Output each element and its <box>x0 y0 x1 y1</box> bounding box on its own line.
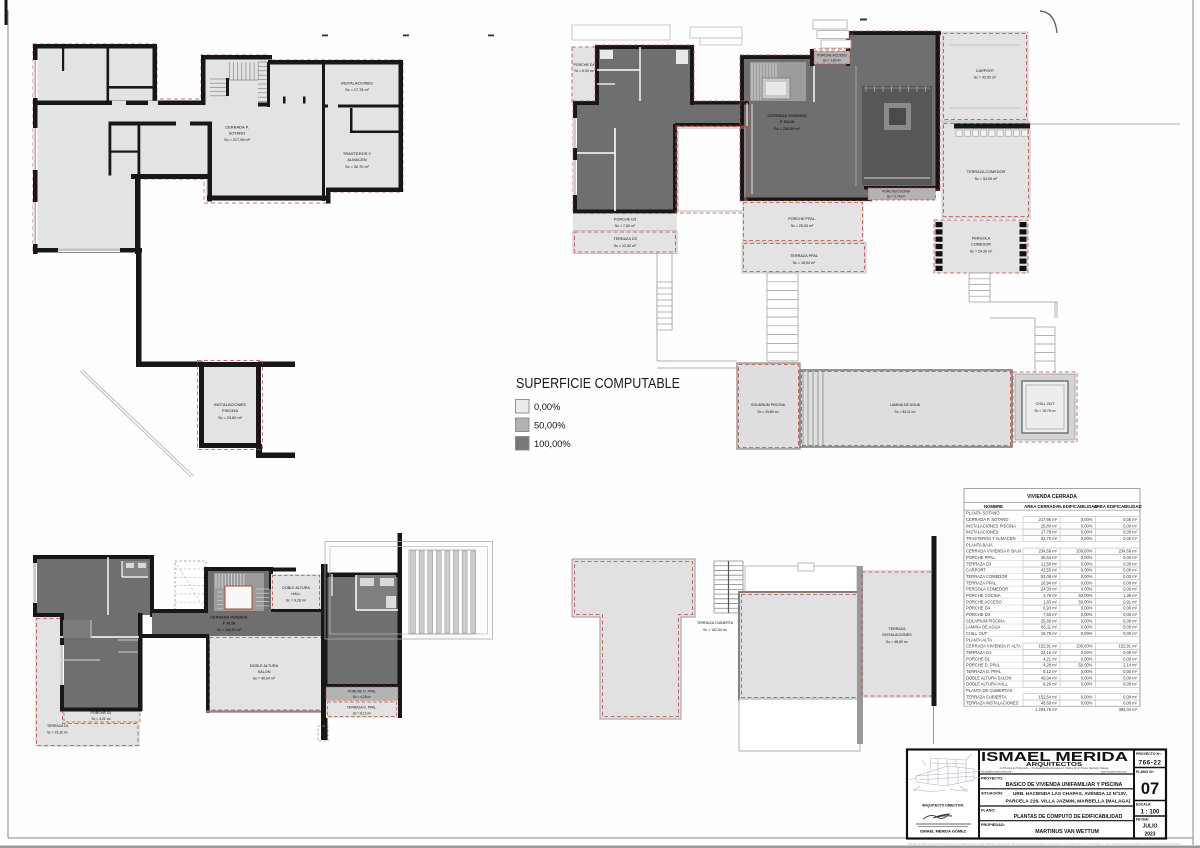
svg-text:Sc = 234,69 m²: Sc = 234,69 m² <box>774 127 801 131</box>
svg-text:0,00%: 0,00% <box>534 402 560 412</box>
svg-text:0,00%: 0,00% <box>1081 580 1093 585</box>
svg-text:152,91 m²: 152,91 m² <box>1039 644 1058 649</box>
svg-text:0,00%: 0,00% <box>1081 682 1093 687</box>
svg-text:Sc = 48,69 m²: Sc = 48,69 m² <box>886 640 909 644</box>
svg-text:Sc = 24,30 m²: Sc = 24,30 m² <box>970 250 993 254</box>
svg-text:P. ALTA: P. ALTA <box>223 622 236 626</box>
svg-text:2,14 m²: 2,14 m² <box>1123 663 1138 668</box>
svg-text:Av.Príncipe de Hohenlohe – Urb: Av.Príncipe de Hohenlohe – Urb.Marbella … <box>1000 766 1109 770</box>
svg-text:INSTALACIONES: INSTALACIONES <box>882 633 912 637</box>
svg-text:PLANTAS DE COMPUTO DE EDIFICAB: PLANTAS DE COMPUTO DE EDIFICABILIDAD <box>1014 814 1123 820</box>
svg-text:PORCHE D1: PORCHE D1 <box>966 656 991 661</box>
svg-text:0,00 m²: 0,00 m² <box>1123 587 1138 592</box>
svg-text:PORCHE D4: PORCHE D4 <box>966 606 991 611</box>
svg-text:TERRAZA D1: TERRAZA D1 <box>966 650 992 655</box>
svg-text:4,28 m²: 4,28 m² <box>1043 663 1058 668</box>
svg-text:50,00%: 50,00% <box>1079 593 1093 598</box>
svg-text:P. BAJA: P. BAJA <box>780 119 795 124</box>
svg-text:Sc = 23,16 m²: Sc = 23,16 m² <box>47 731 69 735</box>
svg-text:2023: 2023 <box>1144 832 1155 838</box>
svg-text:VIVIENDA CERRADA: VIVIENDA CERRADA <box>1027 494 1077 500</box>
svg-text:PORCHE D3: PORCHE D3 <box>966 612 991 617</box>
svg-text:Sc = 4,28 m²: Sc = 4,28 m² <box>353 695 371 699</box>
svg-text:0,00 m²: 0,00 m² <box>1123 694 1138 699</box>
svg-text:TERRAZA D1: TERRAZA D1 <box>47 724 69 728</box>
svg-text:0,00%: 0,00% <box>1081 561 1093 566</box>
svg-text:Sc = 42,55 m²: Sc = 42,55 m² <box>974 76 997 80</box>
svg-text:0,00 m²: 0,00 m² <box>1123 625 1138 630</box>
svg-text:PORCHE/COCINA: PORCHE/COCINA <box>882 190 911 194</box>
svg-text:TERRAZA D. PPAL.: TERRAZA D. PPAL. <box>347 706 377 710</box>
svg-text:40,04 m²: 40,04 m² <box>1041 675 1058 680</box>
svg-text:24,30 m²: 24,30 m² <box>1041 587 1058 592</box>
svg-text:SALON: SALON <box>258 670 271 674</box>
svg-text:0,00 m²: 0,00 m² <box>1123 606 1138 611</box>
svg-text:DOBLE ALTURA HALL: DOBLE ALTURA HALL <box>966 682 1009 687</box>
svg-text:TERRAZA CUBIERTA: TERRAZA CUBIERTA <box>697 621 734 625</box>
svg-text:0,00%: 0,00% <box>1081 568 1093 573</box>
svg-text:NOMBRE: NOMBRE <box>984 504 1003 509</box>
svg-text:0,00 m²: 0,00 m² <box>1123 536 1138 541</box>
svg-text:9,26 m²: 9,26 m² <box>1043 682 1058 687</box>
svg-text:PLANTA DE CUBIERTAS: PLANTA DE CUBIERTAS <box>966 688 1013 693</box>
svg-text:PERGOLA: PERGOLA <box>972 237 991 241</box>
svg-text:AREA EDIFICABILIDAD: AREA EDIFICABILIDAD <box>1094 504 1142 509</box>
svg-text:0,00 m²: 0,00 m² <box>1123 523 1138 528</box>
svg-text:Sc = 25,80 m²: Sc = 25,80 m² <box>218 416 242 420</box>
svg-text:PROPIEDAD:: PROPIEDAD: <box>981 823 1005 827</box>
svg-text:TERRAZA: TERRAZA <box>888 627 906 631</box>
svg-text:0,00 m²: 0,00 m² <box>1123 656 1138 661</box>
svg-text:2,78 m²: 2,78 m² <box>1043 593 1058 598</box>
svg-text:0,00 m²: 0,00 m² <box>1123 650 1138 655</box>
svg-text:Sc = 6,93 m²: Sc = 6,93 m² <box>574 69 594 73</box>
svg-text:% EDIFICABILIDAD: % EDIFICABILIDAD <box>1058 504 1098 509</box>
svg-text:Sc = 40,04 m²: Sc = 40,04 m² <box>253 677 276 681</box>
svg-text:Sc = 32,70 m²: Sc = 32,70 m² <box>345 165 369 169</box>
svg-text:0,00 m²: 0,00 m² <box>1123 669 1138 674</box>
svg-text:PORCHE D. PPAL: PORCHE D. PPAL <box>966 663 1001 668</box>
svg-text:PORCHE D. PPAL: PORCHE D. PPAL <box>348 690 376 694</box>
svg-text:MARTINUS VAN WETTUM: MARTINUS VAN WETTUM <box>1035 829 1099 835</box>
svg-text:DOBLE ALTURA: DOBLE ALTURA <box>282 586 310 590</box>
svg-text:INSTALACIONES: INSTALACIONES <box>214 402 246 407</box>
svg-text:CERRADA VIVIENDA: CERRADA VIVIENDA <box>767 113 806 118</box>
svg-text:TERRAZA COMEDOR: TERRAZA COMEDOR <box>966 574 1007 579</box>
svg-text:Sc = 217,96 m²: Sc = 217,96 m² <box>224 138 251 142</box>
svg-text:ESCALA:: ESCALA: <box>1136 802 1152 806</box>
svg-text:7,50 m²: 7,50 m² <box>1043 612 1058 617</box>
svg-text:CHILL OUT: CHILL OUT <box>1036 402 1055 406</box>
svg-text:217,96 m²: 217,96 m² <box>1039 517 1058 522</box>
svg-text:PORCHE COCINA: PORCHE COCINA <box>966 593 1001 598</box>
svg-text:Sc = 53,09 m²: Sc = 53,09 m² <box>975 177 998 181</box>
svg-text:PLANO Nº:: PLANO Nº: <box>1136 770 1154 774</box>
svg-text:TRASTEROS Y ALMACEN: TRASTEROS Y ALMACEN <box>966 536 1015 541</box>
svg-text:SOLARIUM PISCINA: SOLARIUM PISCINA <box>751 403 786 407</box>
svg-text:0,00%: 0,00% <box>1081 618 1093 623</box>
svg-text:0,00%: 0,00% <box>1081 650 1093 655</box>
svg-text:PORCHE ACCESO: PORCHE ACCESO <box>966 599 1002 604</box>
svg-text:PERGOLA COMEDOR: PERGOLA COMEDOR <box>966 587 1008 592</box>
svg-text:JULIO: JULIO <box>1143 824 1158 830</box>
svg-text:TERRAZA D3: TERRAZA D3 <box>613 237 636 241</box>
svg-text:Sc = 9,26 m²: Sc = 9,26 m² <box>286 599 307 603</box>
svg-text:SOTANO: SOTANO <box>229 131 246 136</box>
svg-text:0,00 m²: 0,00 m² <box>1123 530 1138 535</box>
svg-text:Sc = 152,91 m²: Sc = 152,91 m² <box>217 628 242 632</box>
svg-text:0,00%: 0,00% <box>1081 530 1093 535</box>
svg-text:0,00%: 0,00% <box>1081 675 1093 680</box>
svg-text:CERRADA P. SOTANO: CERRADA P. SOTANO <box>966 517 1008 522</box>
svg-text:TERRAZA D3: TERRAZA D3 <box>966 561 992 566</box>
svg-text:53,09 m²: 53,09 m² <box>1041 574 1058 579</box>
svg-text:LAMINA DE AGUA: LAMINA DE AGUA <box>966 625 1001 630</box>
svg-text:PROYECTO:: PROYECTO: <box>981 776 1004 780</box>
svg-text:0,00%: 0,00% <box>1081 587 1093 592</box>
svg-text:50,00%: 50,00% <box>1079 663 1093 668</box>
svg-text:234,69 m²: 234,69 m² <box>1039 549 1058 554</box>
svg-text:PORCHE D3: PORCHE D3 <box>614 218 636 222</box>
svg-text:48,69 m²: 48,69 m² <box>1041 701 1058 706</box>
svg-text:TERRAZA COMEDOR: TERRAZA COMEDOR <box>967 170 1006 174</box>
svg-text:0,00%: 0,00% <box>1081 694 1093 699</box>
svg-text:PROYECTO Nº:: PROYECTO Nº: <box>1136 752 1162 756</box>
svg-text:INSTALACIONES: INSTALACIONES <box>341 81 373 86</box>
svg-text:LAMINA DE AGUA: LAMINA DE AGUA <box>890 403 921 407</box>
svg-text:100,00%: 100,00% <box>534 439 571 449</box>
svg-text:0,00 m²: 0,00 m² <box>1123 612 1138 617</box>
svg-text:COMEDOR: COMEDOR <box>971 243 991 247</box>
svg-text:TERRAZA D. PPAL: TERRAZA D. PPAL <box>966 669 1002 674</box>
svg-text:6,93 m²: 6,93 m² <box>1043 606 1058 611</box>
svg-text:07: 07 <box>1141 780 1159 798</box>
svg-text:Sc = 25,53 m²: Sc = 25,53 m² <box>791 224 814 228</box>
svg-text:ISMAEL MÉRIDA GÓMEZ: ISMAEL MÉRIDA GÓMEZ <box>920 829 967 834</box>
svg-text:Sc = 25,80 m²: Sc = 25,80 m² <box>757 410 779 414</box>
svg-text:Sc = 17,78 m²: Sc = 17,78 m² <box>345 88 369 92</box>
svg-text:766-22: 766-22 <box>1139 760 1162 767</box>
svg-text:0,00%: 0,00% <box>1081 523 1093 528</box>
svg-text:0,00 m²: 0,00 m² <box>1123 568 1138 573</box>
svg-text:PARCELA 226, VILLA JAZMIN, MAR: PARCELA 226, VILLA JAZMIN, MARBELLA (MAL… <box>1006 799 1131 805</box>
svg-text:0,00 m²: 0,00 m² <box>1123 580 1138 585</box>
svg-text:0,00 m²: 0,00 m² <box>1123 631 1138 636</box>
svg-text:INSTALACIONES: INSTALACIONES <box>966 530 999 535</box>
svg-text:0,00 m²: 0,00 m² <box>1123 517 1138 522</box>
svg-text:PLANTA BAJA: PLANTA BAJA <box>966 542 993 547</box>
svg-text:TRASTEROS Y: TRASTEROS Y <box>343 151 371 156</box>
svg-text:CARPORT: CARPORT <box>966 568 986 573</box>
svg-text:SOLARIUM PISCINA: SOLARIUM PISCINA <box>966 618 1005 623</box>
svg-text:19,78 m²: 19,78 m² <box>1041 631 1058 636</box>
svg-text:Sc = 83,11 m²: Sc = 83,11 m² <box>895 410 917 414</box>
svg-text:1,39 m²: 1,39 m² <box>1123 593 1138 598</box>
svg-text:152,91 m²: 152,91 m² <box>1119 644 1138 649</box>
svg-text:BASICO DE VIVIENDA UNIFAMILIAR: BASICO DE VIVIENDA UNIFAMILIAR Y PISCINA <box>1006 782 1123 788</box>
svg-text:0,00%: 0,00% <box>1081 574 1093 579</box>
svg-text:0,00%: 0,00% <box>1081 631 1093 636</box>
svg-text:0,00 m²: 0,00 m² <box>1123 561 1138 566</box>
svg-text:PORCHE PPAL.: PORCHE PPAL. <box>788 217 816 221</box>
svg-text:Sc = 2,78 m²: Sc = 2,78 m² <box>887 195 905 199</box>
svg-text:152,54 m²: 152,54 m² <box>1039 694 1058 699</box>
svg-text:0,00 m²: 0,00 m² <box>1123 675 1138 680</box>
svg-text:0,00 m²: 0,00 m² <box>1123 618 1138 623</box>
svg-text:1 294,76 m²: 1 294,76 m² <box>1035 707 1057 712</box>
svg-text:Sc = 16,94 m²: Sc = 16,94 m² <box>793 261 816 265</box>
svg-text:Sc = 12,50 m²: Sc = 12,50 m² <box>614 244 637 248</box>
svg-text:25,80 m²: 25,80 m² <box>1041 523 1058 528</box>
svg-text:Sc = 152,54 m²: Sc = 152,54 m² <box>703 628 728 632</box>
svg-text:0,00 m²: 0,00 m² <box>1123 574 1138 579</box>
svg-text:12,50 m²: 12,50 m² <box>1041 561 1058 566</box>
svg-text:0,00%: 0,00% <box>1081 701 1093 706</box>
svg-text:0,00%: 0,00% <box>1081 625 1093 630</box>
svg-text:TERRAZA CUBIERTA: TERRAZA CUBIERTA <box>966 694 1007 699</box>
svg-text:0,00 m²: 0,00 m² <box>1123 682 1138 687</box>
svg-text:TERRAZA PPAL: TERRAZA PPAL <box>966 580 997 585</box>
svg-text:TERRAZA PPAL: TERRAZA PPAL <box>790 254 818 258</box>
svg-text:42,55 m²: 42,55 m² <box>1041 568 1058 573</box>
svg-text:17,78 m²: 17,78 m² <box>1041 530 1058 535</box>
svg-text:0,00%: 0,00% <box>1081 606 1093 611</box>
svg-text:0,00 m²: 0,00 m² <box>1123 555 1138 560</box>
svg-text:PORCHE D4: PORCHE D4 <box>574 63 595 67</box>
svg-text:PLANTA ALTA: PLANTA ALTA <box>966 637 992 642</box>
svg-text:4,21 m²: 4,21 m² <box>1043 656 1058 661</box>
svg-text:0,00%: 0,00% <box>1081 536 1093 541</box>
svg-text:392,04 m²: 392,04 m² <box>1119 707 1138 712</box>
svg-text:Sc = 8,12 m²: Sc = 8,12 m² <box>353 712 371 716</box>
svg-text:ALMACEN: ALMACEN <box>347 157 366 162</box>
svg-text:SITUACIÓN:: SITUACIÓN: <box>981 790 1003 795</box>
svg-text:0,00 m²: 0,00 m² <box>1123 701 1138 706</box>
svg-text:Sc = 7,50 m²: Sc = 7,50 m² <box>615 224 636 228</box>
svg-text:1,83 m²: 1,83 m² <box>1043 599 1058 604</box>
svg-text:CARPORT: CARPORT <box>976 69 995 73</box>
svg-text:23,16 m²: 23,16 m² <box>1041 650 1058 655</box>
svg-text:16,94 m²: 16,94 m² <box>1041 580 1058 585</box>
svg-text:25,80 m²: 25,80 m² <box>1041 618 1058 623</box>
svg-text:Sc = 1,83 m²: Sc = 1,83 m² <box>823 59 841 63</box>
svg-text:CERRADA VIVIENDA: CERRADA VIVIENDA <box>210 616 248 620</box>
svg-text:ARQUITECTO DIRECTOR:: ARQUITECTO DIRECTOR: <box>922 804 964 808</box>
svg-text:HALL: HALL <box>291 592 300 596</box>
svg-text:0,00%: 0,00% <box>1081 612 1093 617</box>
svg-text:SUPERFICIE COMPUTABLE: SUPERFICIE COMPUTABLE <box>516 375 680 392</box>
svg-text:100,00%: 100,00% <box>1076 644 1093 649</box>
svg-text:CERRADA VIVIENDA P. ALTA: CERRADA VIVIENDA P. ALTA <box>966 644 1021 649</box>
svg-text:URB. HACIENDA LAS CHAPAS, AVEN: URB. HACIENDA LAS CHAPAS, AVENIDA 12 Nº1… <box>1013 791 1127 796</box>
svg-text:PLANO:: PLANO: <box>981 808 996 812</box>
svg-text:PORCHE PPAL.: PORCHE PPAL. <box>966 555 996 560</box>
svg-text:50,00%: 50,00% <box>1079 599 1093 604</box>
svg-text:Sc = 4,21 m²: Sc = 4,21 m² <box>91 717 111 721</box>
svg-text:INSTALACIONES PISCINA: INSTALACIONES PISCINA <box>966 523 1016 528</box>
svg-text:1 : 100: 1 : 100 <box>1141 810 1160 816</box>
svg-text:83,11 m²: 83,11 m² <box>1041 625 1057 630</box>
svg-text:234,69 m²: 234,69 m² <box>1119 549 1138 554</box>
svg-text:Sc = 19,78 m²: Sc = 19,78 m² <box>1034 409 1056 413</box>
svg-text:PLANTA SOTANO: PLANTA SOTANO <box>966 511 1000 516</box>
svg-text:estudio@ismaelmerida.com: estudio@ismaelmerida.com <box>981 770 1012 773</box>
svg-text:PISCINA: PISCINA <box>222 408 238 413</box>
svg-text:TERRAZA INSTALACIONES: TERRAZA INSTALACIONES <box>966 701 1019 706</box>
svg-text:FECHA:: FECHA: <box>1136 817 1149 821</box>
svg-text:0,00%: 0,00% <box>1081 517 1093 522</box>
svg-text:0,91 m²: 0,91 m² <box>1123 599 1138 604</box>
svg-text:50,00%: 50,00% <box>534 421 566 431</box>
svg-text:0,00%: 0,00% <box>1081 656 1093 661</box>
svg-text:8,12 m²: 8,12 m² <box>1043 669 1058 674</box>
svg-text:Este plano y diseño es propied: Este plano y diseño es propiedad intelec… <box>908 842 1181 845</box>
svg-text:PORCHE ACCESO: PORCHE ACCESO <box>817 54 847 58</box>
svg-text:0,00%: 0,00% <box>1081 555 1093 560</box>
svg-text:www.ismaelmerida.com: www.ismaelmerida.com <box>1101 770 1127 773</box>
svg-text:100,00%: 100,00% <box>1076 549 1093 554</box>
svg-text:CERRADA P.: CERRADA P. <box>225 125 249 130</box>
svg-text:CHILL OUT: CHILL OUT <box>966 631 988 636</box>
svg-text:AREA CERRADA: AREA CERRADA <box>1024 504 1059 509</box>
svg-text:25,53 m²: 25,53 m² <box>1041 555 1058 560</box>
svg-text:0,00%: 0,00% <box>1081 669 1093 674</box>
svg-text:DOBLE ALTURA SALON: DOBLE ALTURA SALON <box>966 675 1011 680</box>
svg-text:CERRADA VIVIENDA P. BAJA: CERRADA VIVIENDA P. BAJA <box>966 549 1022 554</box>
svg-text:PORCHE D1: PORCHE D1 <box>91 711 112 715</box>
svg-text:DOBLE ALTURA: DOBLE ALTURA <box>250 664 279 668</box>
svg-text:32,70 m²: 32,70 m² <box>1041 536 1058 541</box>
